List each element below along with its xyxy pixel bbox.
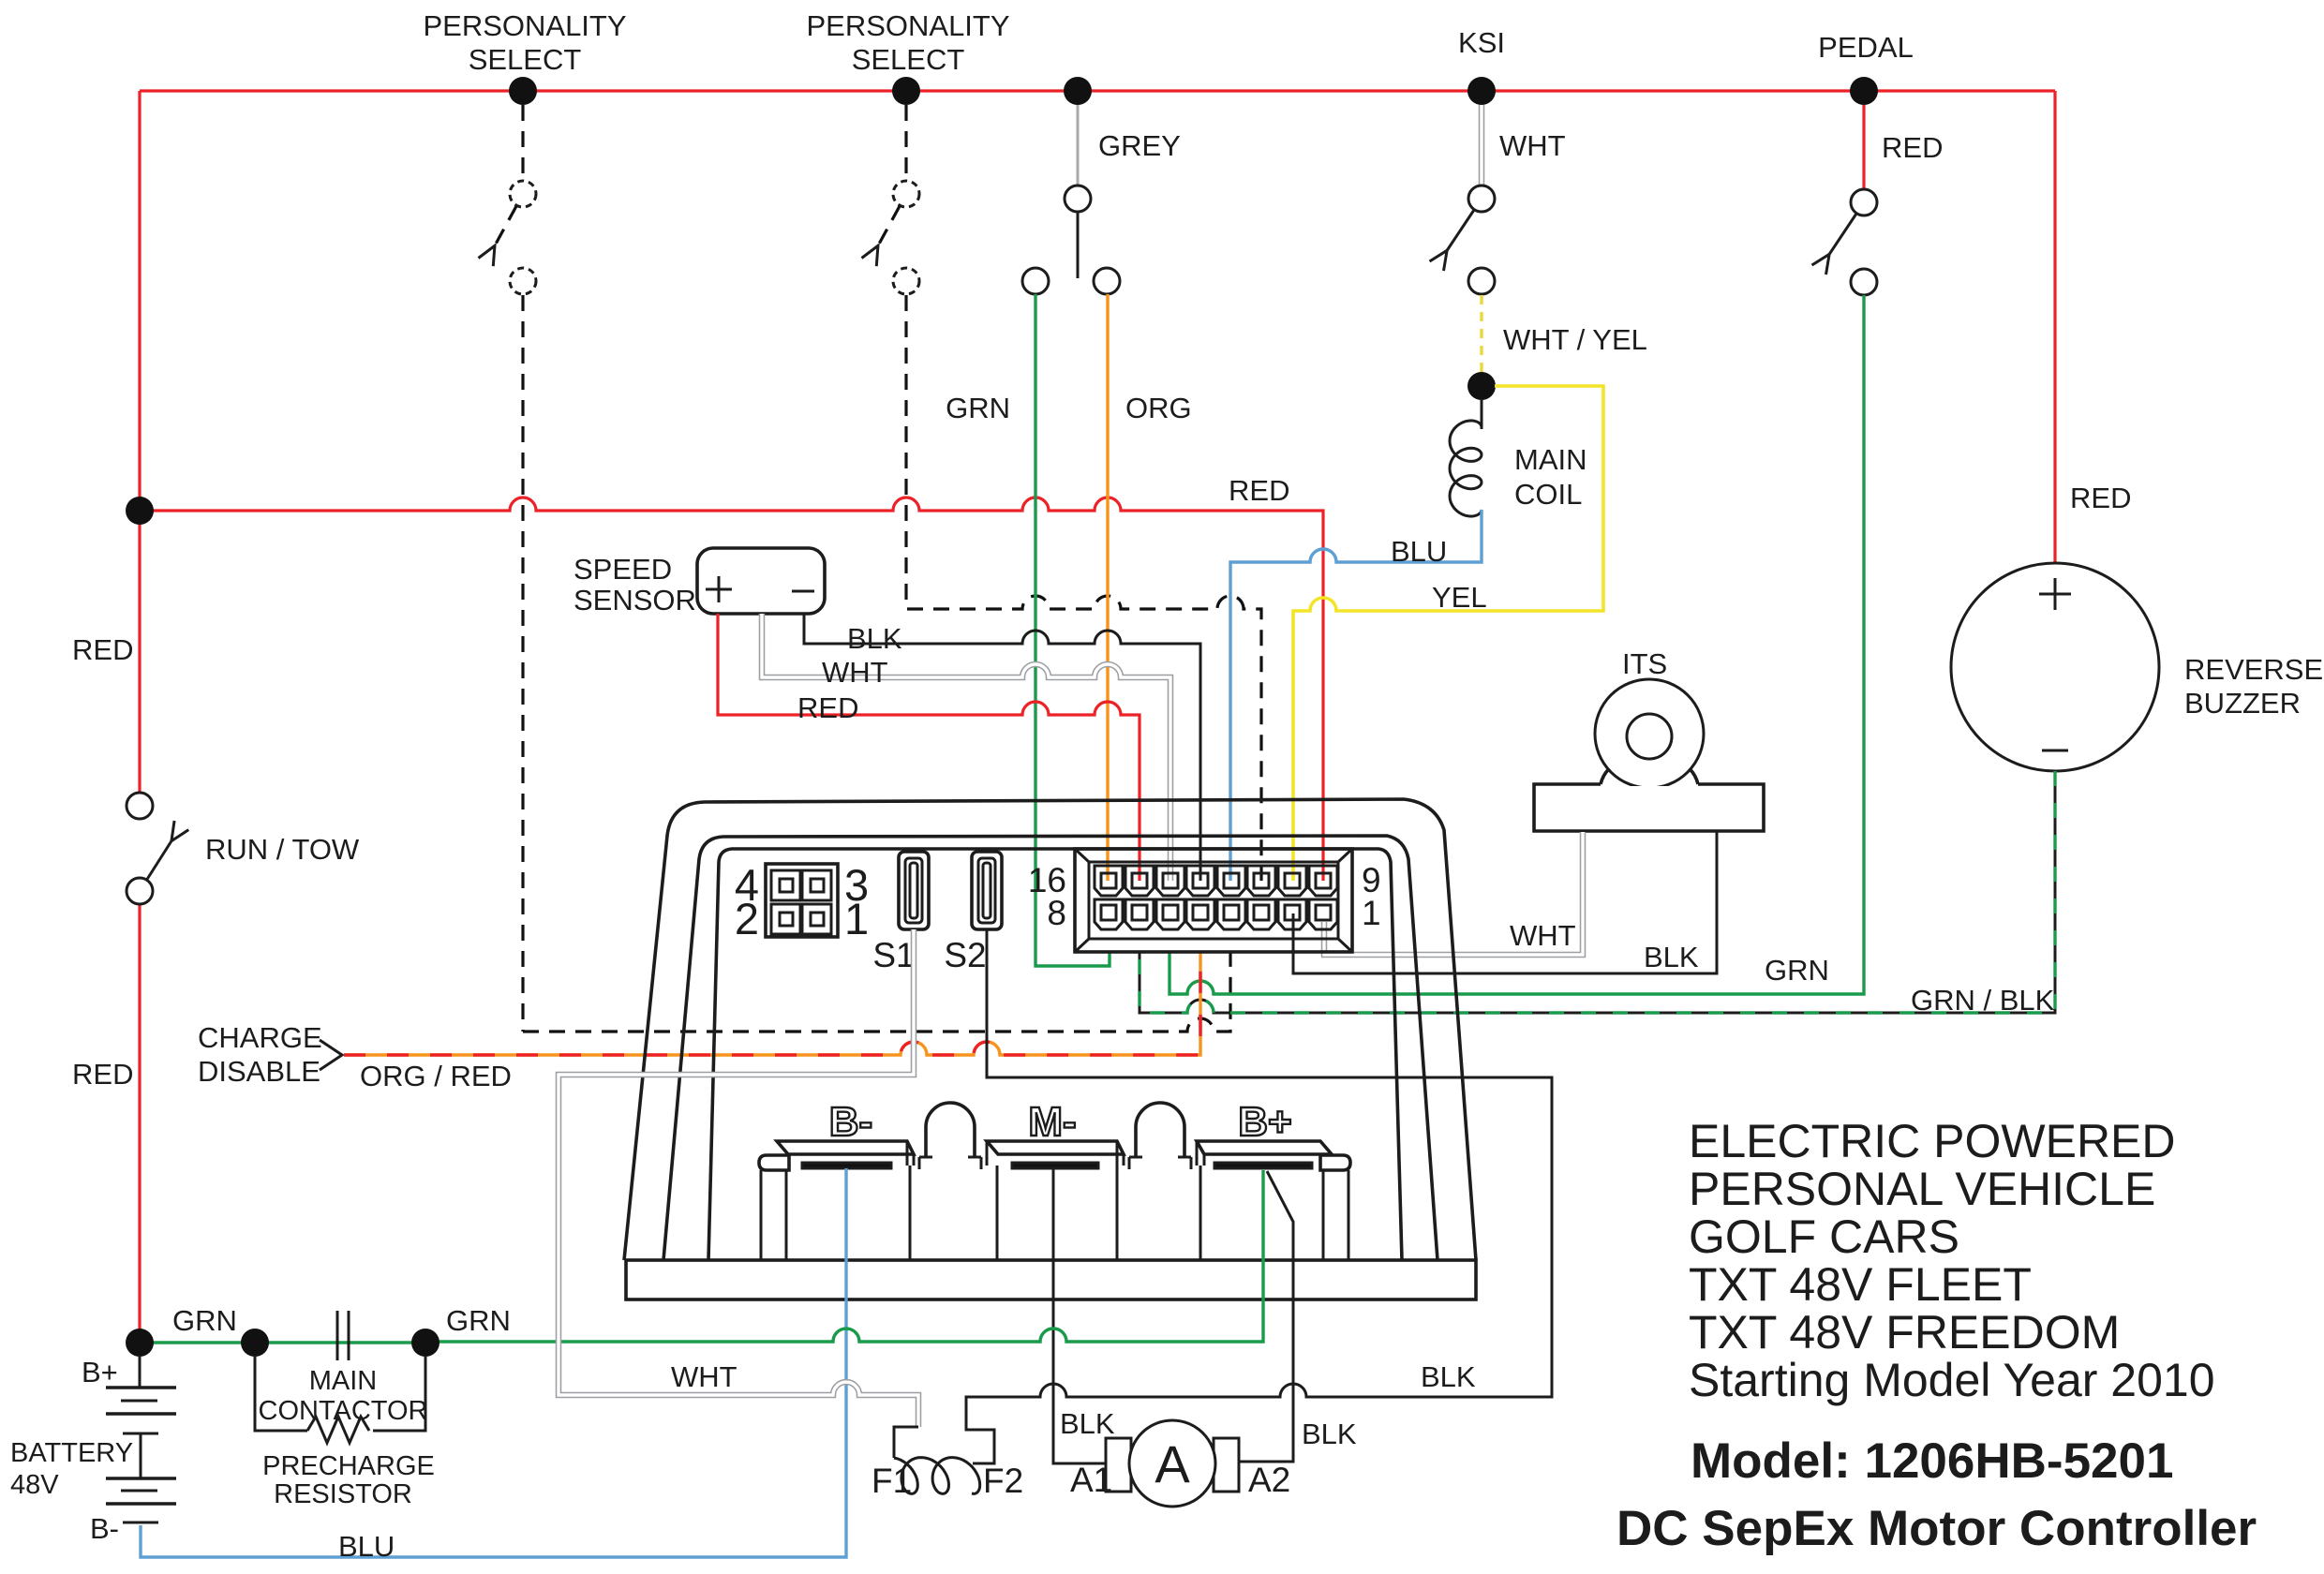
svg-text:ORG: ORG <box>1125 392 1192 424</box>
svg-text:WHT / YEL: WHT / YEL <box>1503 323 1647 356</box>
svg-text:A: A <box>1155 1434 1190 1493</box>
svg-text:REVERSE: REVERSE <box>2184 653 2323 686</box>
svg-text:S2: S2 <box>944 936 986 974</box>
svg-text:SELECT: SELECT <box>469 43 582 76</box>
svg-text:F2: F2 <box>983 1462 1023 1500</box>
svg-text:8: 8 <box>1047 894 1066 932</box>
svg-text:B-: B- <box>829 1099 872 1145</box>
svg-text:RED: RED <box>1229 474 1289 507</box>
svg-text:WHT: WHT <box>671 1360 737 1393</box>
svg-text:BLK: BLK <box>1060 1407 1115 1440</box>
svg-text:48V: 48V <box>10 1470 59 1500</box>
svg-text:GRN: GRN <box>1765 954 1829 987</box>
svg-text:MAIN: MAIN <box>1514 443 1587 476</box>
svg-text:YEL: YEL <box>1432 581 1487 614</box>
svg-text:GRN: GRN <box>172 1304 237 1337</box>
svg-text:RUN / TOW: RUN / TOW <box>205 833 360 866</box>
svg-text:BLK: BLK <box>847 622 902 655</box>
svg-text:GRN: GRN <box>946 392 1010 424</box>
svg-text:DISABLE: DISABLE <box>198 1055 320 1088</box>
svg-text:MAIN: MAIN <box>309 1366 378 1396</box>
svg-text:COIL: COIL <box>1514 478 1582 511</box>
svg-text:ITS: ITS <box>1622 647 1667 680</box>
svg-text:CHARGE: CHARGE <box>198 1021 322 1054</box>
svg-text:SPEED: SPEED <box>574 553 672 586</box>
svg-text:BLK: BLK <box>1302 1418 1357 1450</box>
svg-text:S1: S1 <box>872 936 915 974</box>
svg-text:1: 1 <box>844 894 869 943</box>
svg-text:RED: RED <box>797 691 858 724</box>
svg-text:TXT 48V FREEDOM: TXT 48V FREEDOM <box>1689 1306 2120 1359</box>
svg-text:KSI: KSI <box>1458 26 1505 59</box>
svg-text:A2: A2 <box>1248 1461 1290 1499</box>
svg-text:RED: RED <box>1882 131 1943 164</box>
svg-text:Starting Model Year 2010: Starting Model Year 2010 <box>1689 1354 2215 1406</box>
svg-text:TXT 48V FLEET: TXT 48V FLEET <box>1689 1258 2032 1311</box>
svg-text:PERSONALITY: PERSONALITY <box>806 9 1009 42</box>
svg-text:B-: B- <box>90 1512 119 1545</box>
svg-text:SELECT: SELECT <box>852 43 965 76</box>
svg-text:ELECTRIC POWERED: ELECTRIC POWERED <box>1689 1115 2176 1167</box>
svg-text:PRECHARGE: PRECHARGE <box>262 1451 435 1481</box>
svg-text:ORG / RED: ORG / RED <box>360 1060 512 1092</box>
svg-text:RED: RED <box>72 633 133 666</box>
svg-text:BLK: BLK <box>1421 1360 1476 1393</box>
svg-text:RED: RED <box>72 1058 133 1091</box>
svg-text:M-: M- <box>1028 1099 1076 1145</box>
svg-text:WHT: WHT <box>1499 129 1566 162</box>
svg-text:PERSONALITY: PERSONALITY <box>423 9 626 42</box>
svg-text:PERSONAL VEHICLE: PERSONAL VEHICLE <box>1689 1163 2155 1215</box>
svg-text:BLU: BLU <box>1391 535 1447 568</box>
svg-text:GREY: GREY <box>1098 129 1181 162</box>
svg-text:RESISTOR: RESISTOR <box>274 1479 412 1509</box>
svg-text:GRN / BLK: GRN / BLK <box>1911 984 2055 1017</box>
svg-text:2: 2 <box>735 894 759 943</box>
svg-text:Model: 1206HB-5201: Model: 1206HB-5201 <box>1691 1433 2173 1489</box>
svg-text:BUZZER: BUZZER <box>2184 687 2301 720</box>
svg-text:SENSOR: SENSOR <box>574 584 696 616</box>
svg-text:GOLF CARS: GOLF CARS <box>1689 1210 1959 1263</box>
svg-text:BATTERY: BATTERY <box>10 1438 133 1468</box>
svg-text:DC SepEx Motor Controller: DC SepEx Motor Controller <box>1616 1501 2257 1556</box>
svg-text:RED: RED <box>2070 482 2131 514</box>
svg-text:CONTACTOR: CONTACTOR <box>259 1396 428 1426</box>
svg-text:PEDAL: PEDAL <box>1818 31 1914 64</box>
svg-text:1: 1 <box>1362 894 1381 932</box>
svg-text:A1: A1 <box>1070 1461 1112 1499</box>
svg-text:BLK: BLK <box>1644 941 1699 973</box>
svg-text:BLU: BLU <box>338 1530 395 1563</box>
svg-text:F1: F1 <box>871 1462 912 1500</box>
svg-text:WHT: WHT <box>822 656 888 689</box>
svg-text:B+: B+ <box>1238 1099 1291 1145</box>
svg-text:GRN: GRN <box>446 1304 511 1337</box>
svg-text:WHT: WHT <box>1510 919 1576 952</box>
svg-text:B+: B+ <box>82 1356 118 1388</box>
